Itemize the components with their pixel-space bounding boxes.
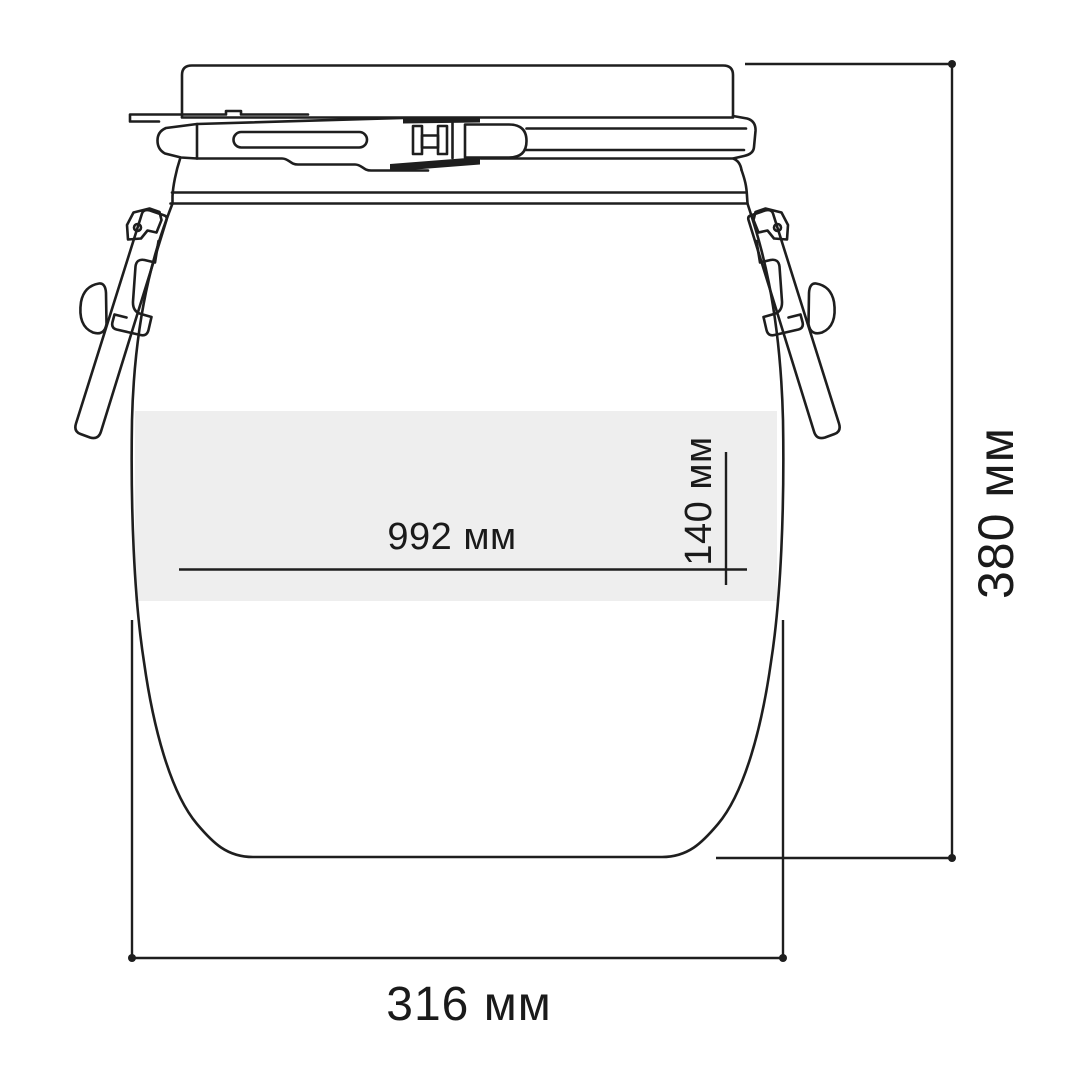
dim-label-140: 140 мм — [678, 436, 720, 565]
neck-rim-lines — [171, 193, 748, 204]
left-latch-pad — [80, 283, 106, 333]
strap-right-segment — [527, 129, 747, 151]
clamp-handle-wedge — [158, 124, 198, 159]
handle-slot — [234, 132, 368, 148]
buckle-bar-right — [438, 126, 447, 154]
technical-drawing-page: 992 мм 140 мм 380 мм 316 мм — [0, 0, 1084, 1084]
adjuster-block — [465, 125, 527, 158]
dim-label-992: 992 мм — [387, 516, 516, 558]
right-latch — [748, 209, 839, 439]
buckle-bar-left — [413, 126, 422, 154]
lid-right-lip — [481, 116, 756, 170]
dim-label-380: 380 мм — [968, 427, 1024, 599]
right-latch-pad — [809, 283, 835, 333]
dot-380-bottom — [948, 854, 956, 862]
buckle-middle — [422, 136, 438, 148]
barrel-technical-drawing: 992 мм 140 мм 380 мм 316 мм — [0, 0, 1084, 1084]
dim-label-316: 316 мм — [386, 978, 551, 1031]
right-latch-lever — [748, 210, 839, 438]
strap-bottom-bar — [390, 157, 480, 172]
dot-380-top — [948, 60, 956, 68]
lid-cap — [182, 66, 733, 118]
dot-316-right — [779, 954, 787, 962]
left-latch — [75, 209, 166, 439]
clamp-handle-body — [197, 118, 428, 171]
left-latch-lever — [75, 210, 166, 438]
dot-316-left — [128, 954, 136, 962]
